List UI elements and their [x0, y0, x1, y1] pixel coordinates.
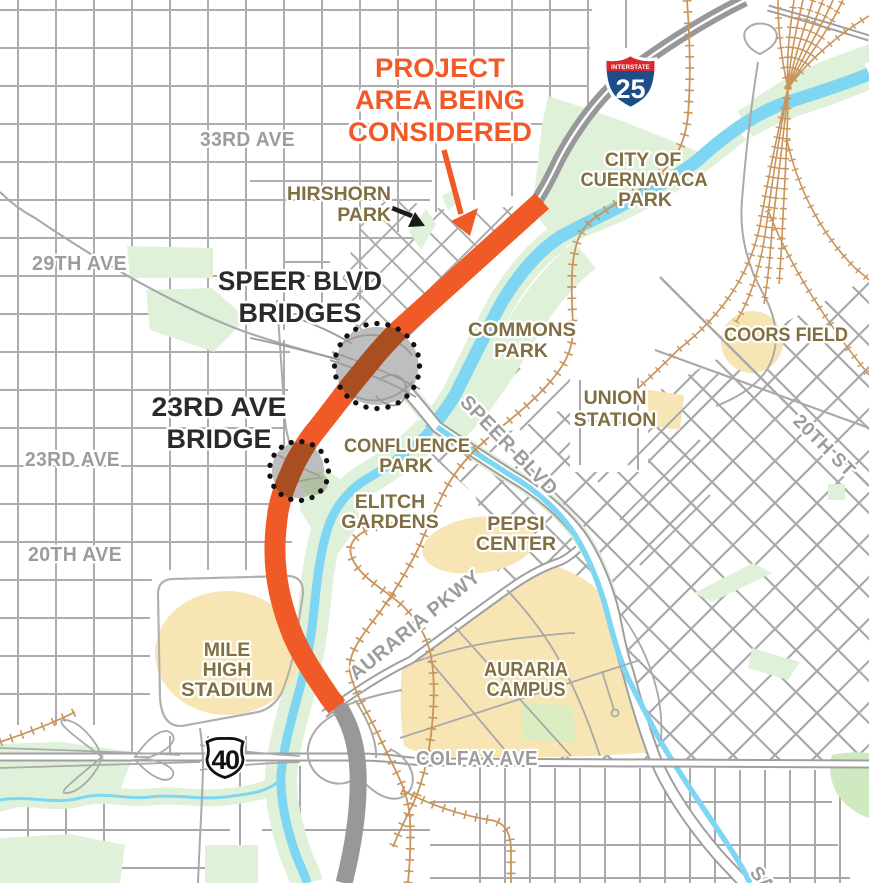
svg-text:PARK: PARK	[618, 189, 672, 211]
svg-text:AREA BEING: AREA BEING	[355, 85, 525, 115]
svg-text:PROJECT: PROJECT	[375, 53, 505, 83]
svg-text:BRIDGES: BRIDGES	[238, 298, 361, 328]
svg-text:UNION: UNION	[584, 387, 647, 409]
svg-text:CAMPUS: CAMPUS	[487, 679, 566, 701]
svg-text:33RD AVE: 33RD AVE	[200, 129, 295, 151]
svg-text:COMMONS: COMMONS	[468, 319, 576, 341]
svg-text:HIRSHORN: HIRSHORN	[287, 183, 391, 205]
svg-text:25: 25	[615, 74, 645, 104]
svg-text:PARK: PARK	[494, 340, 548, 362]
svg-text:COORS FIELD: COORS FIELD	[724, 324, 848, 346]
svg-text:PEPSI: PEPSI	[487, 513, 544, 535]
svg-text:CONFLUENCE: CONFLUENCE	[344, 435, 470, 457]
svg-text:SPEER BLVD: SPEER BLVD	[218, 266, 382, 296]
svg-text:PARK: PARK	[337, 204, 391, 226]
svg-text:ELITCH: ELITCH	[355, 491, 425, 513]
svg-text:BRIDGE: BRIDGE	[166, 424, 271, 454]
svg-text:HIGH: HIGH	[203, 659, 252, 681]
svg-text:40: 40	[211, 745, 239, 775]
svg-text:CUERNAVACA: CUERNAVACA	[581, 169, 708, 191]
svg-text:23RD AVE: 23RD AVE	[152, 392, 287, 422]
svg-text:CENTER: CENTER	[476, 533, 556, 555]
svg-text:STADIUM: STADIUM	[181, 679, 273, 701]
svg-text:CONSIDERED: CONSIDERED	[348, 117, 532, 147]
svg-text:AURARIA: AURARIA	[484, 659, 568, 681]
svg-text:GARDENS: GARDENS	[341, 511, 439, 533]
svg-text:STATION: STATION	[574, 409, 657, 431]
svg-text:MILE: MILE	[204, 639, 251, 661]
svg-text:23RD AVE: 23RD AVE	[25, 449, 120, 471]
svg-text:PARK: PARK	[379, 455, 433, 477]
svg-text:COLFAX AVE: COLFAX AVE	[416, 748, 538, 770]
svg-text:20TH AVE: 20TH AVE	[28, 544, 122, 566]
svg-text:CITY OF: CITY OF	[605, 149, 682, 171]
svg-text:29TH AVE: 29TH AVE	[32, 253, 127, 275]
svg-text:INTERSTATE: INTERSTATE	[611, 65, 650, 71]
